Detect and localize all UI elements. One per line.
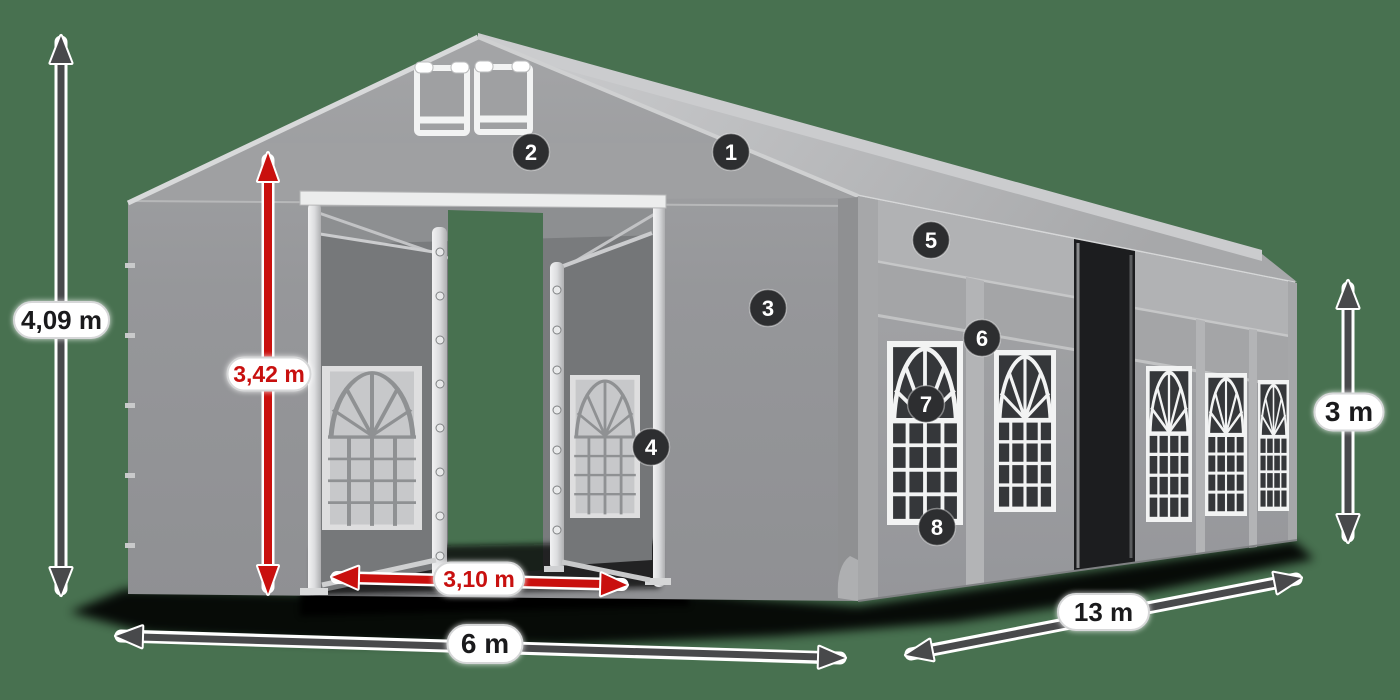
side-window-4 — [1207, 375, 1246, 513]
svg-text:13 m: 13 m — [1074, 597, 1133, 627]
dimension-label-side-length: 13 m — [1058, 594, 1149, 630]
svg-text:4: 4 — [645, 435, 658, 460]
svg-text:4,09 m: 4,09 m — [21, 305, 102, 335]
svg-text:2: 2 — [525, 140, 537, 165]
side-window-5 — [1259, 382, 1288, 509]
callout-5: 5 — [913, 222, 950, 259]
callout-4: 4 — [633, 429, 670, 466]
front-entrance — [300, 191, 671, 596]
svg-text:6 m: 6 m — [461, 628, 509, 659]
gable-vent-right — [475, 61, 530, 132]
svg-text:1: 1 — [725, 140, 737, 165]
entrance-left-pole — [308, 203, 321, 595]
dimension-total-height: 4,09 m — [14, 36, 109, 595]
tent-dimension-diagram: 4,09 m 3,42 m 3,10 m 6 m — [0, 0, 1400, 700]
callout-7: 7 — [908, 386, 945, 423]
svg-text:3: 3 — [762, 296, 774, 321]
callout-2: 2 — [513, 134, 550, 171]
entrance-right-pole — [653, 203, 665, 587]
gable-vent-left — [415, 62, 469, 133]
entrance-door-right — [544, 232, 652, 572]
open-passage — [448, 210, 543, 578]
door-left-window — [326, 369, 418, 528]
svg-text:3,10 m: 3,10 m — [443, 566, 515, 592]
callout-6: 6 — [964, 320, 1001, 357]
side-window-3 — [1148, 369, 1190, 520]
entrance-door-left — [318, 227, 450, 593]
svg-text:3,42 m: 3,42 m — [233, 361, 305, 387]
dimension-label-entrance-height: 3,42 m — [228, 358, 311, 391]
svg-text:8: 8 — [931, 515, 943, 540]
dimension-label-side-height: 3 m — [1315, 394, 1384, 431]
side-window-2 — [996, 353, 1053, 510]
dimension-side-height: 3 m — [1315, 281, 1384, 542]
dimension-label-front-width: 6 m — [448, 625, 523, 663]
side-entrance-opening — [1074, 239, 1135, 571]
callout-3: 3 — [750, 290, 787, 327]
dimension-label-total-height: 4,09 m — [14, 302, 109, 338]
svg-text:6: 6 — [976, 326, 988, 351]
svg-text:5: 5 — [925, 228, 937, 253]
dimension-label-entrance-width: 3,10 m — [434, 563, 524, 596]
svg-text:7: 7 — [920, 392, 932, 417]
door-right-window — [573, 377, 637, 515]
callout-8: 8 — [919, 509, 956, 546]
side-window-1 — [890, 344, 960, 522]
svg-text:3 m: 3 m — [1325, 396, 1373, 427]
callout-1: 1 — [713, 134, 750, 171]
